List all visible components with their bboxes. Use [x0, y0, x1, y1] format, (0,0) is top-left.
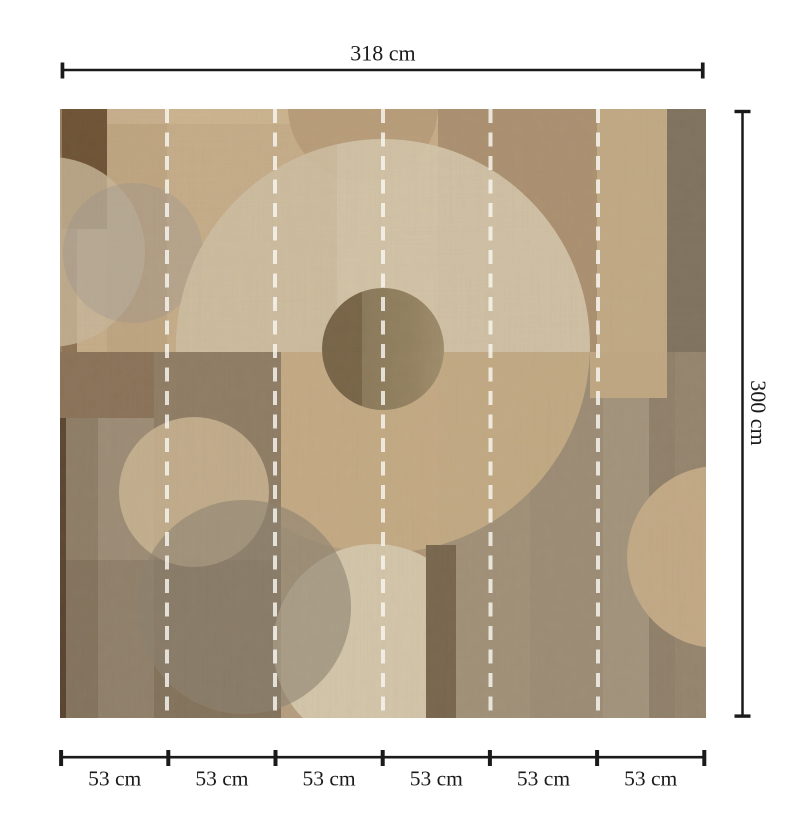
svg-text:318 cm: 318 cm — [350, 41, 415, 66]
svg-text:53 cm: 53 cm — [88, 767, 141, 791]
svg-text:53 cm: 53 cm — [624, 767, 677, 791]
svg-text:53 cm: 53 cm — [410, 767, 463, 791]
svg-text:53 cm: 53 cm — [195, 767, 248, 791]
svg-text:300 cm: 300 cm — [746, 380, 771, 445]
svg-text:53 cm: 53 cm — [303, 767, 356, 791]
svg-text:53 cm: 53 cm — [517, 767, 570, 791]
